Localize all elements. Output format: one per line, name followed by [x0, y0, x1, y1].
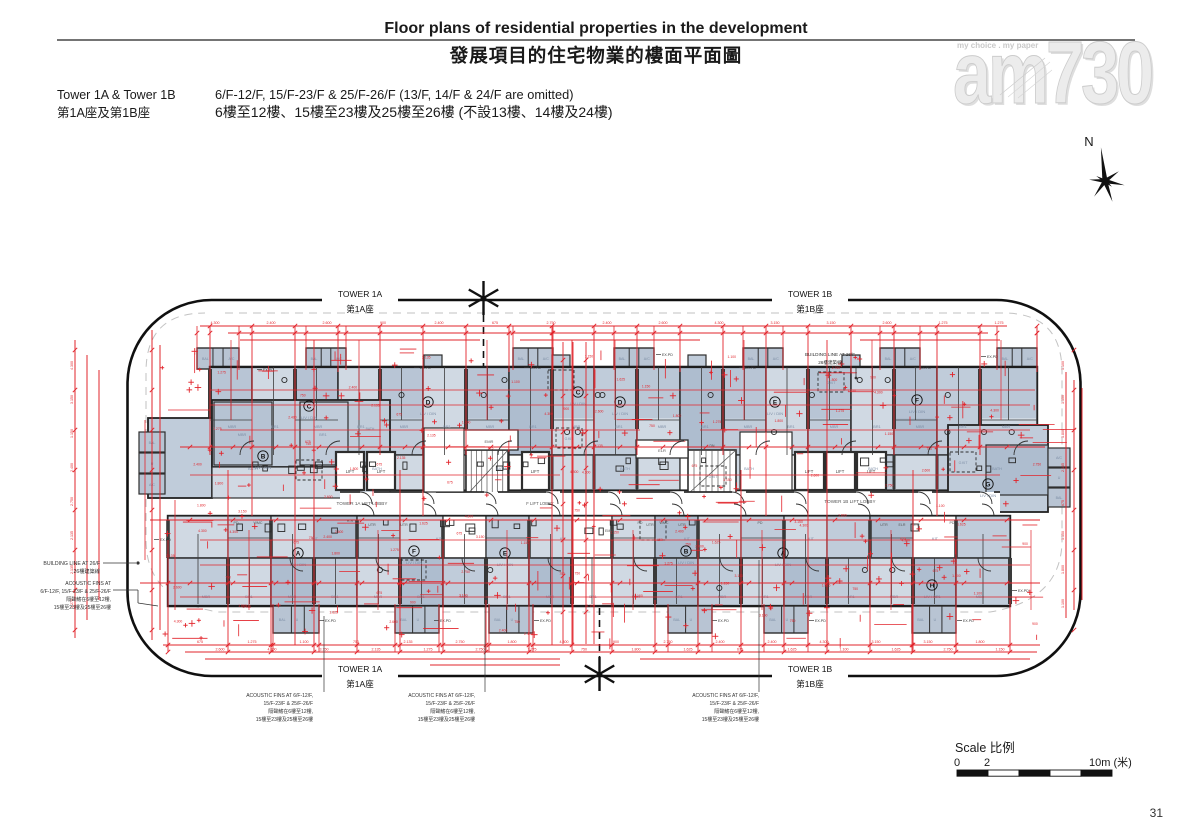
svg-text:TOWER 1A: TOWER 1A	[338, 289, 383, 299]
svg-text:2.400: 2.400	[603, 321, 612, 325]
svg-text:750: 750	[574, 572, 580, 576]
svg-text:675: 675	[488, 446, 494, 450]
svg-text:U: U	[1058, 476, 1061, 480]
svg-text:LIV / DIN: LIV / DIN	[767, 411, 783, 416]
svg-text:3.150: 3.150	[476, 535, 485, 539]
svg-text:UTR: UTR	[646, 523, 654, 527]
svg-text:4.300: 4.300	[901, 539, 910, 543]
svg-text:1.150: 1.150	[585, 355, 594, 359]
svg-text:2.750: 2.750	[1033, 462, 1042, 466]
svg-text:MBR: MBR	[400, 425, 409, 429]
svg-text:2.400: 2.400	[70, 463, 74, 472]
svg-text:N: N	[1084, 134, 1093, 149]
svg-text:1.150: 1.150	[654, 538, 663, 542]
svg-text:2.135: 2.135	[594, 444, 603, 448]
svg-text:第1B座: 第1B座	[796, 679, 824, 689]
svg-text:1.150: 1.150	[885, 432, 894, 436]
svg-text:BAL: BAL	[917, 618, 924, 622]
svg-text:1.625: 1.625	[788, 648, 797, 652]
svg-text:4.300: 4.300	[211, 321, 220, 325]
svg-text:675: 675	[933, 569, 939, 573]
svg-text:EX.PD: EX.PD	[420, 366, 431, 370]
svg-text:675: 675	[1061, 500, 1065, 506]
svg-text:BATH: BATH	[744, 467, 754, 471]
svg-text:2.600: 2.600	[389, 620, 398, 624]
svg-text:LIFT: LIFT	[836, 469, 845, 474]
svg-text:KIT: KIT	[808, 537, 815, 541]
svg-text:1.150: 1.150	[610, 531, 619, 535]
svg-text:隔聲鰭在6樓至12樓,: 隔聲鰭在6樓至12樓,	[66, 596, 111, 603]
svg-text:BAL: BAL	[1056, 496, 1063, 500]
svg-text:2.600: 2.600	[323, 321, 332, 325]
svg-text:MBR: MBR	[228, 425, 237, 429]
svg-text:2.400: 2.400	[499, 628, 508, 632]
svg-text:675: 675	[293, 540, 299, 544]
svg-text:1.275: 1.275	[390, 548, 399, 552]
svg-text:3.150: 3.150	[70, 395, 74, 404]
svg-text:BAL: BAL	[400, 618, 407, 622]
svg-text:2.135: 2.135	[404, 640, 413, 644]
svg-text:2.400: 2.400	[524, 632, 533, 636]
svg-text:2.135: 2.135	[1061, 463, 1065, 472]
svg-text:1.800: 1.800	[1061, 429, 1065, 438]
svg-text:2.400: 2.400	[675, 529, 684, 533]
svg-text:675: 675	[456, 532, 462, 536]
svg-text:2.135: 2.135	[422, 355, 431, 359]
svg-text:1.625: 1.625	[822, 584, 831, 588]
svg-text:4.300: 4.300	[715, 321, 724, 325]
svg-text:A/C: A/C	[543, 357, 549, 361]
svg-text:2.135: 2.135	[427, 433, 436, 437]
svg-text:750: 750	[559, 572, 565, 576]
svg-text:BATH: BATH	[620, 467, 630, 471]
svg-text:900: 900	[1022, 542, 1028, 546]
svg-text:3.150: 3.150	[771, 321, 780, 325]
svg-text:1.275: 1.275	[248, 640, 257, 644]
svg-text:1.275: 1.275	[713, 420, 722, 424]
svg-text:31: 31	[1150, 806, 1164, 820]
svg-text:BR1: BR1	[615, 425, 622, 429]
svg-text:1.275: 1.275	[664, 562, 673, 566]
svg-text:1.800: 1.800	[197, 503, 206, 507]
svg-text:UTR: UTR	[400, 523, 408, 527]
svg-text:2.750: 2.750	[70, 497, 74, 506]
svg-text:BUILDING LINE AT 26/F: BUILDING LINE AT 26/F	[805, 352, 855, 357]
svg-text:TOWER 1B: TOWER 1B	[788, 664, 833, 674]
svg-text:隔聲鰭在6樓至12樓,: 隔聲鰭在6樓至12樓,	[714, 708, 759, 715]
svg-text:1.150: 1.150	[847, 389, 856, 393]
svg-text:4.300: 4.300	[582, 471, 591, 475]
svg-text:ACOUSTIC FINS AT 6/F-12/F,: ACOUSTIC FINS AT 6/F-12/F,	[246, 693, 313, 699]
svg-text:1.100: 1.100	[462, 420, 471, 424]
svg-text:1.100: 1.100	[728, 355, 737, 359]
svg-text:EX.PD: EX.PD	[745, 366, 756, 370]
svg-text:1.275: 1.275	[995, 321, 1004, 325]
svg-text:BAL: BAL	[518, 357, 525, 361]
svg-text:2.600: 2.600	[595, 410, 604, 414]
svg-text:MBR: MBR	[830, 425, 839, 429]
svg-text:ACOUSTIC FINS AT 6/F-12/F,: ACOUSTIC FINS AT 6/F-12/F,	[408, 693, 475, 699]
svg-text:750: 750	[790, 619, 796, 623]
svg-text:2.400: 2.400	[349, 386, 358, 390]
svg-text:675: 675	[447, 481, 453, 485]
svg-text:PD: PD	[758, 521, 763, 525]
svg-text:1.100: 1.100	[840, 648, 849, 652]
svg-text:4.300: 4.300	[465, 514, 474, 518]
svg-text:2.600: 2.600	[811, 474, 820, 478]
svg-text:BUILDING LINE AT 26/F: BUILDING LINE AT 26/F	[43, 561, 100, 567]
svg-text:TOWER 1A: TOWER 1A	[338, 664, 383, 674]
svg-text:2.750: 2.750	[461, 570, 470, 574]
svg-text:第1A座及第1B座: 第1A座及第1B座	[57, 105, 150, 120]
svg-text:675: 675	[737, 648, 743, 652]
svg-text:1.625: 1.625	[684, 648, 693, 652]
svg-text:2.400: 2.400	[288, 415, 297, 419]
svg-text:2.600: 2.600	[922, 469, 931, 473]
svg-text:15樓至23樓及25樓至26樓: 15樓至23樓及25樓至26樓	[256, 716, 313, 723]
svg-text:PD: PD	[234, 521, 239, 525]
svg-text:26樓建築線: 26樓建築線	[818, 359, 842, 366]
svg-text:1.150: 1.150	[642, 385, 651, 389]
svg-text:BR1: BR1	[443, 425, 450, 429]
svg-text:3.150: 3.150	[872, 640, 881, 644]
svg-text:C: C	[576, 390, 581, 397]
svg-text:MBR: MBR	[238, 433, 247, 437]
svg-text:2.600: 2.600	[324, 495, 333, 499]
svg-text:BAL: BAL	[619, 357, 626, 361]
svg-text:am730: am730	[953, 24, 1152, 122]
svg-text:1.275: 1.275	[836, 409, 845, 413]
svg-text:B: B	[261, 454, 266, 461]
svg-text:BAL: BAL	[769, 618, 776, 622]
svg-text:675: 675	[197, 640, 203, 644]
svg-text:6/F-12/F, 15/F-23/F & 25/F-26/: 6/F-12/F, 15/F-23/F & 25/F-26/F	[40, 589, 111, 595]
svg-text:4.300: 4.300	[800, 523, 809, 527]
svg-text:my choice . my paper: my choice . my paper	[957, 41, 1038, 50]
svg-text:750: 750	[225, 576, 231, 580]
svg-text:MBR: MBR	[486, 425, 495, 429]
svg-text:PD: PD	[950, 521, 955, 525]
svg-text:4.300: 4.300	[174, 619, 183, 623]
svg-text:4.300: 4.300	[560, 640, 569, 644]
svg-text:A/C: A/C	[228, 357, 234, 361]
svg-text:900: 900	[563, 407, 569, 411]
svg-text:750: 750	[581, 648, 587, 652]
svg-text:1.800: 1.800	[508, 640, 517, 644]
svg-text:D: D	[426, 400, 431, 407]
svg-text:15樓至23樓及25樓至26樓: 15樓至23樓及25樓至26樓	[54, 604, 111, 611]
svg-text:1.100: 1.100	[1061, 361, 1065, 370]
svg-text:2.400: 2.400	[435, 321, 444, 325]
svg-text:BR1: BR1	[319, 433, 326, 437]
svg-text:BR1: BR1	[271, 425, 278, 429]
svg-text:TOWER 1A LIFT LOBBY: TOWER 1A LIFT LOBBY	[337, 501, 388, 506]
svg-text:第1B座: 第1B座	[796, 304, 824, 314]
svg-text:4.300: 4.300	[268, 648, 277, 652]
svg-text:BR1: BR1	[529, 425, 536, 429]
svg-text:隔聲鰭在6樓至12樓,: 隔聲鰭在6樓至12樓,	[430, 708, 475, 715]
svg-text:G: G	[986, 482, 991, 489]
svg-text:BAL: BAL	[279, 618, 286, 622]
svg-text:H: H	[930, 583, 935, 590]
svg-text:2.600: 2.600	[173, 585, 182, 589]
svg-text:675: 675	[376, 591, 382, 595]
svg-text:1.625: 1.625	[419, 522, 428, 526]
svg-text:1.100: 1.100	[974, 592, 983, 596]
svg-text:D: D	[618, 400, 623, 407]
svg-text:O.KIT: O.KIT	[959, 461, 968, 465]
svg-text:O.KIT: O.KIT	[709, 475, 718, 479]
svg-text:2.400: 2.400	[768, 640, 777, 644]
svg-text:2.750: 2.750	[664, 640, 673, 644]
svg-text:BAL: BAL	[673, 618, 680, 622]
svg-text:15樓至23樓及25樓至26樓: 15樓至23樓及25樓至26樓	[418, 716, 475, 723]
svg-text:LIV / DIN: LIV / DIN	[420, 411, 436, 416]
svg-text:E: E	[773, 400, 778, 407]
svg-text:TOWER 1B LIFT LOBBY: TOWER 1B LIFT LOBBY	[824, 499, 875, 504]
svg-text:1.150: 1.150	[1061, 531, 1065, 540]
svg-text:BR1: BR1	[787, 425, 794, 429]
svg-text:ACOUSTIC FINS AT: ACOUSTIC FINS AT	[65, 581, 111, 587]
svg-text:BATH: BATH	[992, 467, 1002, 471]
svg-text:EMR: EMR	[485, 439, 494, 444]
svg-text:3.150: 3.150	[924, 640, 933, 644]
svg-text:1.150: 1.150	[996, 648, 1005, 652]
svg-text:1.625: 1.625	[712, 541, 721, 545]
svg-text:1.625: 1.625	[957, 523, 966, 527]
svg-text:4.300: 4.300	[570, 470, 579, 474]
svg-text:750: 750	[649, 424, 655, 428]
svg-text:LIV / DIN: LIV / DIN	[497, 562, 513, 567]
svg-text:EX.PD: EX.PD	[325, 619, 336, 623]
svg-text:3.150: 3.150	[723, 478, 732, 482]
svg-text:UTR: UTR	[368, 523, 376, 527]
svg-text:BATH: BATH	[496, 467, 506, 471]
svg-text:2.750: 2.750	[456, 640, 465, 644]
svg-text:LIV / DIN: LIV / DIN	[678, 560, 694, 565]
svg-text:0: 0	[954, 757, 960, 769]
svg-text:3.150: 3.150	[735, 574, 744, 578]
svg-text:750: 750	[514, 620, 520, 624]
svg-text:A/C: A/C	[1027, 357, 1033, 361]
svg-text:A/C: A/C	[773, 357, 779, 361]
svg-text:10m (米): 10m (米)	[1089, 756, 1132, 769]
svg-text:1.150: 1.150	[521, 541, 530, 545]
svg-text:第1A座: 第1A座	[346, 679, 374, 689]
svg-text:BATH: BATH	[248, 467, 258, 471]
svg-text:1.800: 1.800	[673, 414, 682, 418]
svg-text:A/C: A/C	[644, 357, 650, 361]
svg-text:15/F-23/F & 25/F-26/F: 15/F-23/F & 25/F-26/F	[426, 701, 475, 707]
svg-text:15/F-23/F & 25/F-26/F: 15/F-23/F & 25/F-26/F	[264, 701, 313, 707]
svg-text:750: 750	[353, 640, 359, 644]
svg-text:2.750: 2.750	[476, 648, 485, 652]
svg-text:1.625: 1.625	[329, 611, 338, 615]
svg-text:BATH: BATH	[868, 467, 878, 471]
svg-text:1.800: 1.800	[829, 378, 838, 382]
svg-text:MBR: MBR	[658, 425, 667, 429]
svg-text:3.150: 3.150	[759, 614, 768, 618]
svg-text:1.800: 1.800	[331, 552, 340, 556]
svg-text:1.800: 1.800	[775, 419, 784, 423]
svg-text:KIT: KIT	[932, 537, 939, 541]
svg-text:2.750: 2.750	[243, 605, 252, 609]
svg-text:750: 750	[300, 393, 306, 397]
svg-text:第1A座: 第1A座	[346, 304, 374, 314]
svg-text:900: 900	[410, 600, 416, 604]
svg-text:MBR: MBR	[744, 425, 753, 429]
svg-text:EX.PD: EX.PD	[662, 353, 673, 357]
svg-text:發展項目的住宅物業的樓面平面圖: 發展項目的住宅物業的樓面平面圖	[449, 45, 743, 66]
svg-text:1.100: 1.100	[511, 380, 520, 384]
svg-text:2.135: 2.135	[397, 456, 406, 460]
svg-text:1.275: 1.275	[213, 427, 222, 431]
svg-text:750: 750	[685, 542, 691, 546]
svg-text:UTR: UTR	[880, 523, 888, 527]
svg-text:15/F-23/F & 25/F-26/F: 15/F-23/F & 25/F-26/F	[710, 701, 759, 707]
svg-text:2.135: 2.135	[70, 531, 74, 540]
svg-text:1.275: 1.275	[424, 648, 433, 652]
svg-text:Scale 比例: Scale 比例	[955, 741, 1015, 755]
svg-text:1.800: 1.800	[976, 640, 985, 644]
svg-text:1.275: 1.275	[939, 321, 948, 325]
svg-text:LIV / DIN: LIV / DIN	[775, 562, 791, 567]
svg-text:F: F	[412, 549, 416, 556]
svg-text:3.150: 3.150	[459, 594, 468, 598]
svg-text:LIV / DIN: LIV / DIN	[612, 411, 628, 416]
svg-text:BAL: BAL	[202, 357, 209, 361]
svg-text:4.300: 4.300	[544, 412, 553, 416]
svg-text:2.400: 2.400	[193, 462, 202, 466]
svg-text:750: 750	[574, 509, 580, 513]
svg-text:1.100: 1.100	[936, 504, 945, 508]
svg-text:2.750: 2.750	[832, 366, 841, 370]
svg-text:4.300: 4.300	[874, 391, 883, 395]
svg-text:BR1: BR1	[701, 425, 708, 429]
svg-text:4.300: 4.300	[229, 530, 238, 534]
svg-text:TOWER 1B: TOWER 1B	[788, 289, 833, 299]
svg-text:A/C: A/C	[1056, 456, 1062, 460]
svg-text:1.150: 1.150	[1061, 395, 1065, 404]
svg-text:BAL: BAL	[748, 357, 755, 361]
svg-text:EX.PD: EX.PD	[718, 619, 729, 623]
svg-text:3.150: 3.150	[238, 509, 247, 513]
svg-text:MBR: MBR	[1002, 425, 1011, 429]
svg-text:2.750: 2.750	[944, 648, 953, 652]
svg-text:1.800: 1.800	[838, 513, 847, 517]
svg-text:EX.PD: EX.PD	[987, 355, 998, 359]
svg-text:900: 900	[870, 376, 876, 380]
svg-text:26樓建築線: 26樓建築線	[73, 567, 100, 575]
svg-text:2.135: 2.135	[166, 554, 175, 558]
svg-text:1.800: 1.800	[952, 574, 961, 578]
svg-text:2.600: 2.600	[216, 648, 225, 652]
svg-text:F: F	[915, 398, 919, 405]
svg-text:BR1: BR1	[959, 425, 966, 429]
svg-text:LIV / DIN: LIV / DIN	[406, 560, 422, 565]
svg-text:MBR: MBR	[916, 425, 925, 429]
svg-text:2.600: 2.600	[659, 321, 668, 325]
svg-text:ELR: ELR	[658, 448, 666, 453]
svg-text:MBR: MBR	[314, 425, 323, 429]
svg-text:LIV / DIN: LIV / DIN	[909, 409, 925, 414]
svg-text:1.800: 1.800	[215, 482, 224, 486]
svg-text:1.800: 1.800	[632, 648, 641, 652]
svg-text:BAL: BAL	[885, 357, 892, 361]
svg-text:2.600: 2.600	[335, 530, 344, 534]
svg-text:1.100: 1.100	[300, 640, 309, 644]
svg-text:LIV / DIN: LIV / DIN	[980, 493, 996, 498]
svg-text:2.400: 2.400	[267, 321, 276, 325]
svg-text:EX.PD: EX.PD	[815, 619, 826, 623]
svg-text:BATH: BATH	[372, 467, 382, 471]
svg-text:1.100: 1.100	[634, 594, 643, 598]
svg-text:隔聲鰭在6樓至12樓,: 隔聲鰭在6樓至12樓,	[268, 708, 313, 715]
svg-text:1.100: 1.100	[586, 604, 595, 608]
svg-text:2.750: 2.750	[885, 483, 894, 487]
svg-text:EX.PD: EX.PD	[920, 366, 931, 370]
svg-text:Floor plans of residential pro: Floor plans of residential properties in…	[384, 20, 808, 37]
svg-text:BAL: BAL	[494, 618, 501, 622]
svg-text:EX.PD: EX.PD	[160, 538, 171, 542]
svg-text:6樓至12樓、15樓至23樓及25樓至26樓 (不設13樓、: 6樓至12樓、15樓至23樓及25樓至26樓 (不設13樓、14樓及24樓)	[215, 104, 613, 120]
svg-text:2.400: 2.400	[323, 535, 332, 539]
svg-text:1.625: 1.625	[617, 378, 626, 382]
svg-text:A: A	[781, 551, 786, 558]
svg-text:675: 675	[492, 321, 498, 325]
svg-text:675: 675	[305, 440, 311, 444]
svg-text:2.600: 2.600	[883, 321, 892, 325]
svg-text:A: A	[296, 551, 301, 558]
svg-text:675: 675	[396, 413, 402, 417]
svg-text:ELR: ELR	[899, 523, 906, 527]
svg-text:4.300: 4.300	[198, 529, 207, 533]
svg-text:BR1: BR1	[873, 425, 880, 429]
svg-text:900: 900	[613, 640, 619, 644]
svg-text:F LIFT LOBBY: F LIFT LOBBY	[526, 501, 554, 506]
svg-text:LIV / DIN: LIV / DIN	[290, 562, 306, 567]
svg-text:4.300: 4.300	[820, 640, 829, 644]
svg-text:A/C: A/C	[910, 357, 916, 361]
svg-text:KIT: KIT	[436, 537, 443, 541]
svg-text:LIFT: LIFT	[531, 469, 540, 474]
svg-text:750: 750	[309, 536, 315, 540]
svg-text:675: 675	[377, 463, 383, 467]
svg-text:1.275: 1.275	[217, 370, 226, 374]
svg-text:15樓至23樓及25樓至26樓: 15樓至23樓及25樓至26樓	[702, 716, 759, 723]
svg-text:B: B	[684, 549, 689, 556]
svg-text:BAL: BAL	[1002, 357, 1009, 361]
svg-text:4.300: 4.300	[70, 361, 74, 370]
svg-text:PD: PD	[638, 521, 643, 525]
svg-text:ACOUSTIC FINS AT 6/F-12/F,: ACOUSTIC FINS AT 6/F-12/F,	[692, 693, 759, 699]
svg-text:2: 2	[984, 757, 990, 769]
svg-text:EX.PD: EX.PD	[540, 619, 551, 623]
svg-text:6/F-12/F, 15/F-23/F & 25/F-26/: 6/F-12/F, 15/F-23/F & 25/F-26/F (13/F, 1…	[215, 87, 573, 102]
svg-text:900: 900	[1032, 622, 1038, 626]
svg-text:2.135: 2.135	[372, 648, 381, 652]
svg-text:BATH: BATH	[366, 427, 375, 431]
svg-text:LIV / DIN: LIV / DIN	[301, 415, 317, 420]
svg-text:1.625: 1.625	[892, 648, 901, 652]
svg-text:BR1: BR1	[357, 425, 364, 429]
svg-text:2.400: 2.400	[716, 640, 725, 644]
svg-text:750: 750	[852, 587, 858, 591]
svg-text:1.150: 1.150	[70, 429, 74, 438]
svg-text:2.135: 2.135	[371, 403, 380, 407]
svg-text:675: 675	[692, 464, 698, 468]
svg-text:EX.PD: EX.PD	[440, 619, 451, 623]
